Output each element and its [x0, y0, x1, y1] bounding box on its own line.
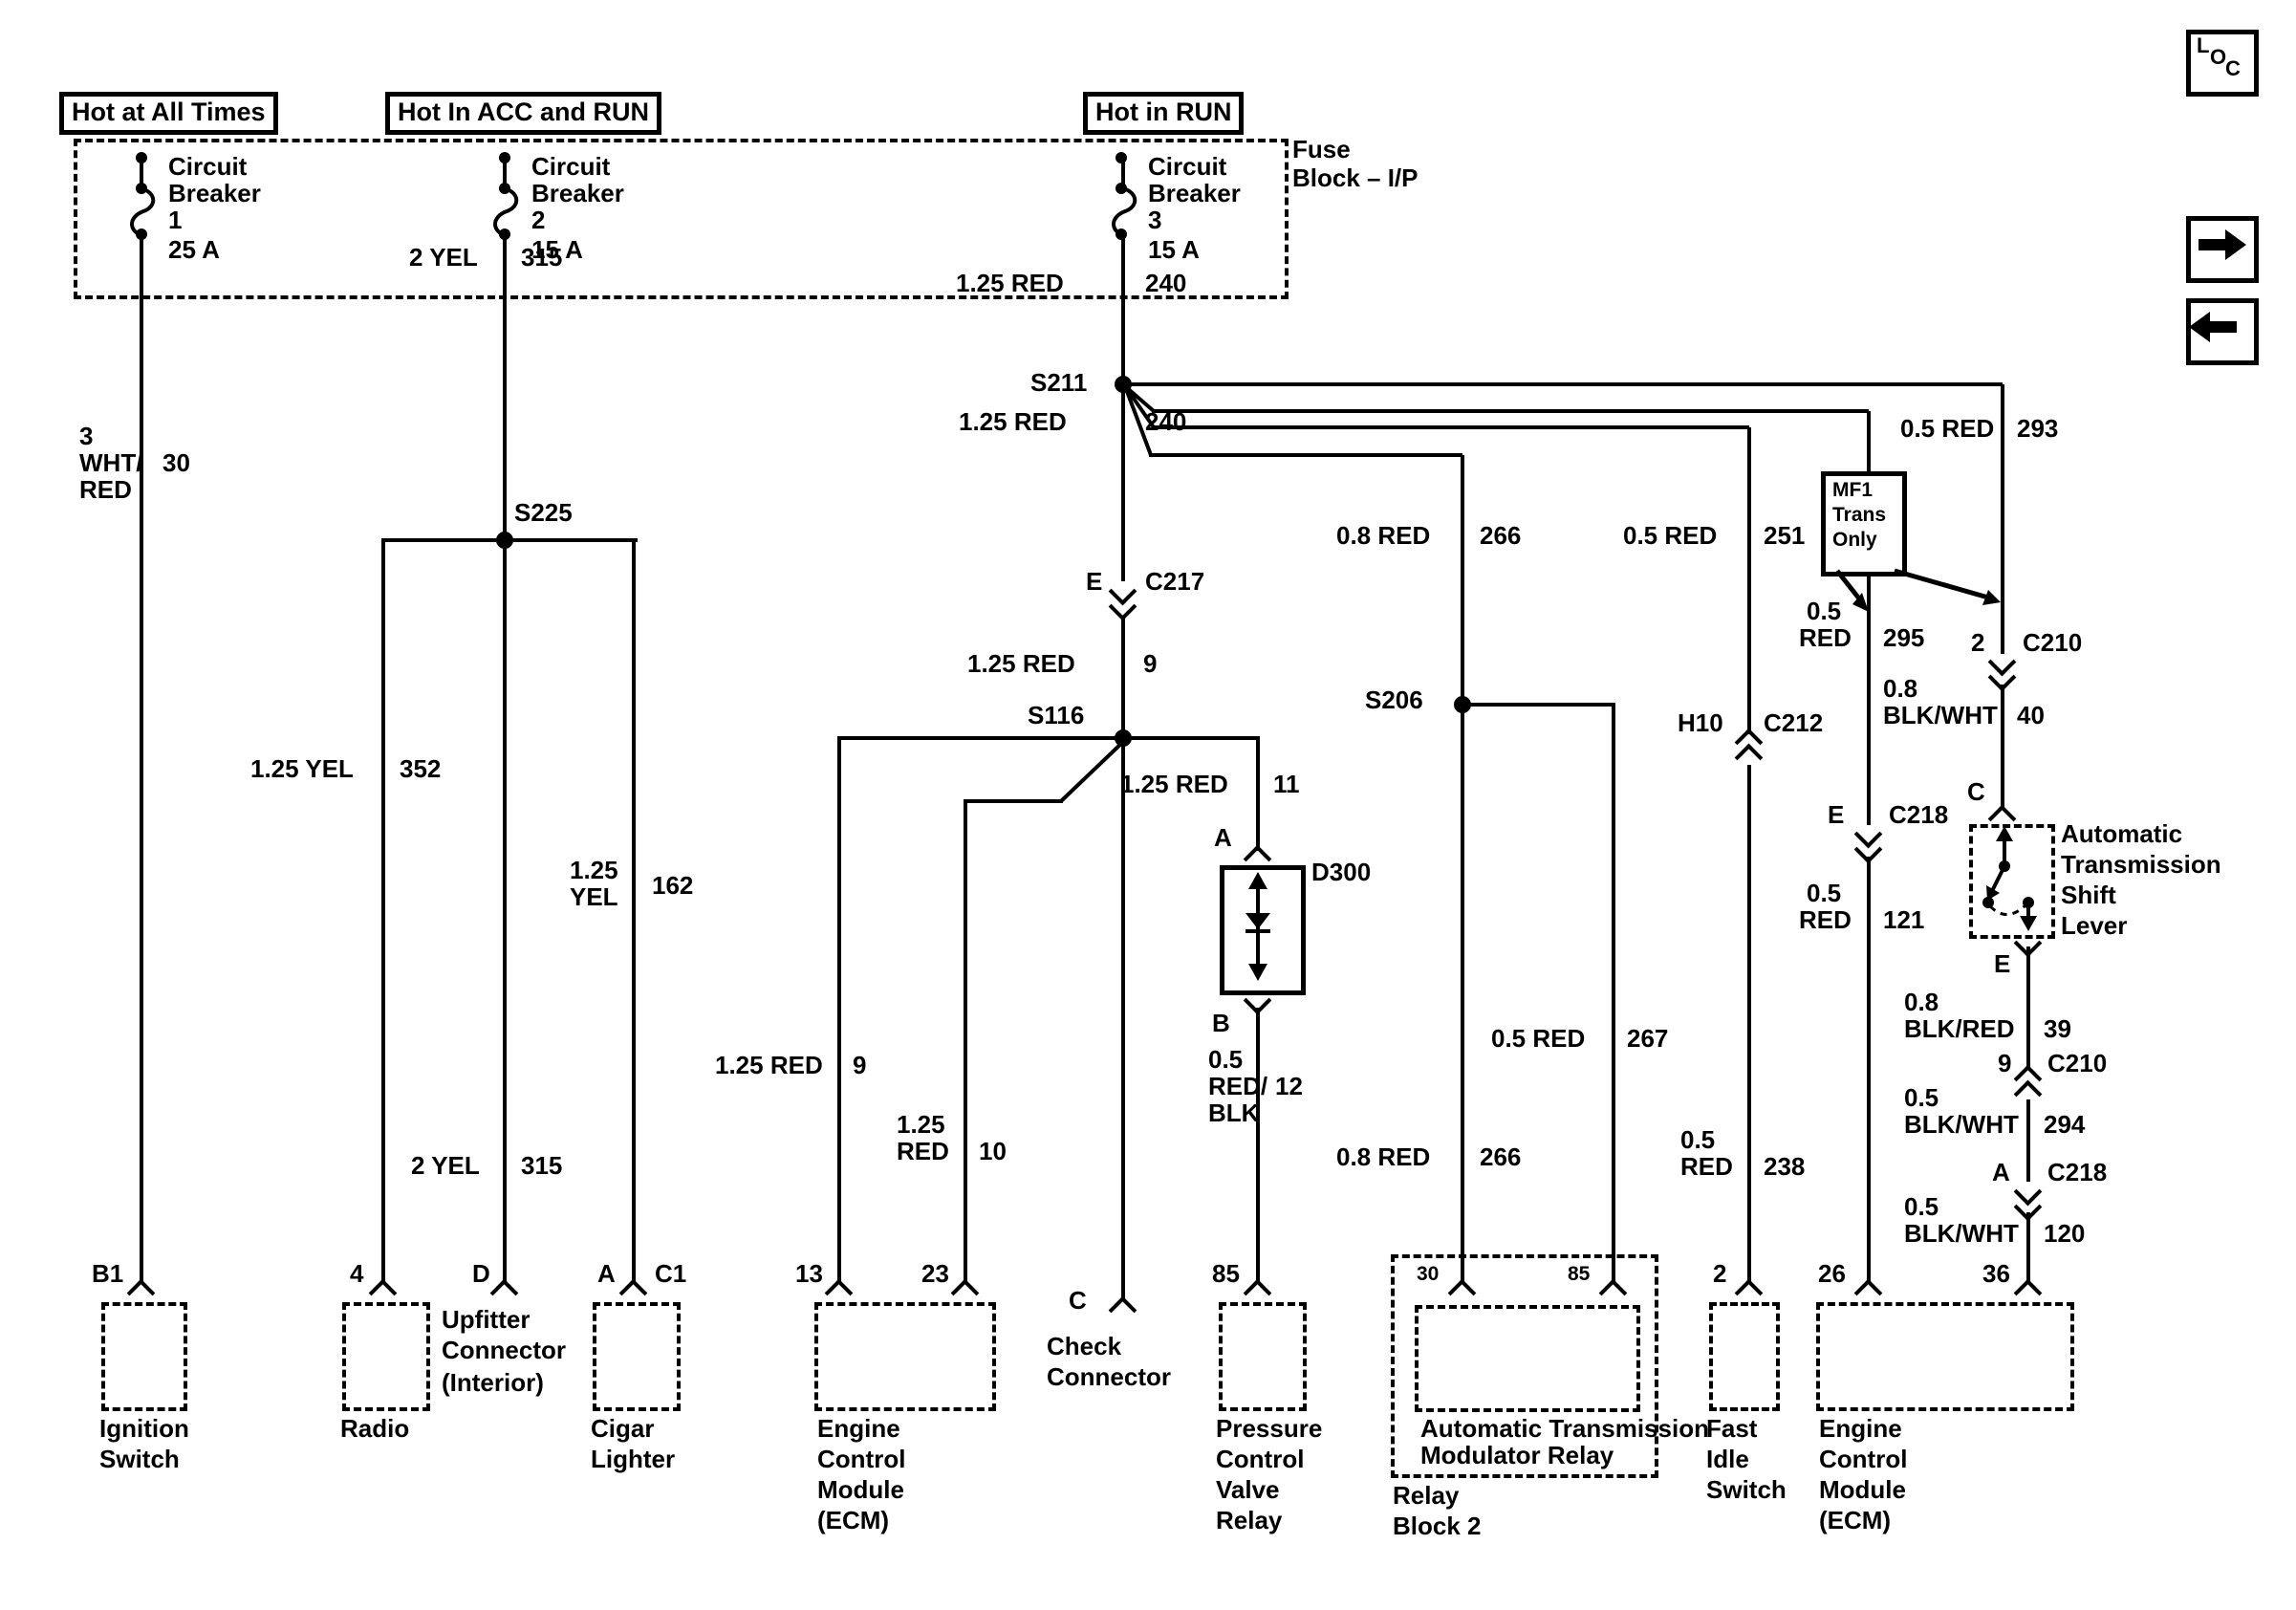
shift-travel-arc	[1990, 904, 2026, 915]
s116-diagonal	[1061, 740, 1125, 801]
mf1-right-arrow-icon	[1895, 571, 1988, 598]
d300-diode-triangle-icon	[1245, 913, 1270, 929]
breaker3-squiggle-icon	[1114, 188, 1135, 236]
back-arrow-icon	[2189, 312, 2237, 342]
d300-up-arrowhead-icon	[1248, 872, 1267, 889]
shift-up-arrowhead-icon	[1996, 826, 2013, 841]
d300-down-arrowhead-icon	[1248, 964, 1267, 981]
wiring-diagram: Hot at All Times Hot In ACC and RUN Hot …	[0, 0, 2296, 1610]
diagram-shapes-layer	[0, 0, 2296, 1610]
shift-down-arrowhead-icon	[2020, 916, 2037, 931]
forward-arrow-icon	[2199, 229, 2246, 260]
shift-lever-arm	[1991, 866, 2004, 893]
breaker2-squiggle-icon	[495, 188, 516, 236]
breaker1-squiggle-icon	[132, 188, 153, 236]
